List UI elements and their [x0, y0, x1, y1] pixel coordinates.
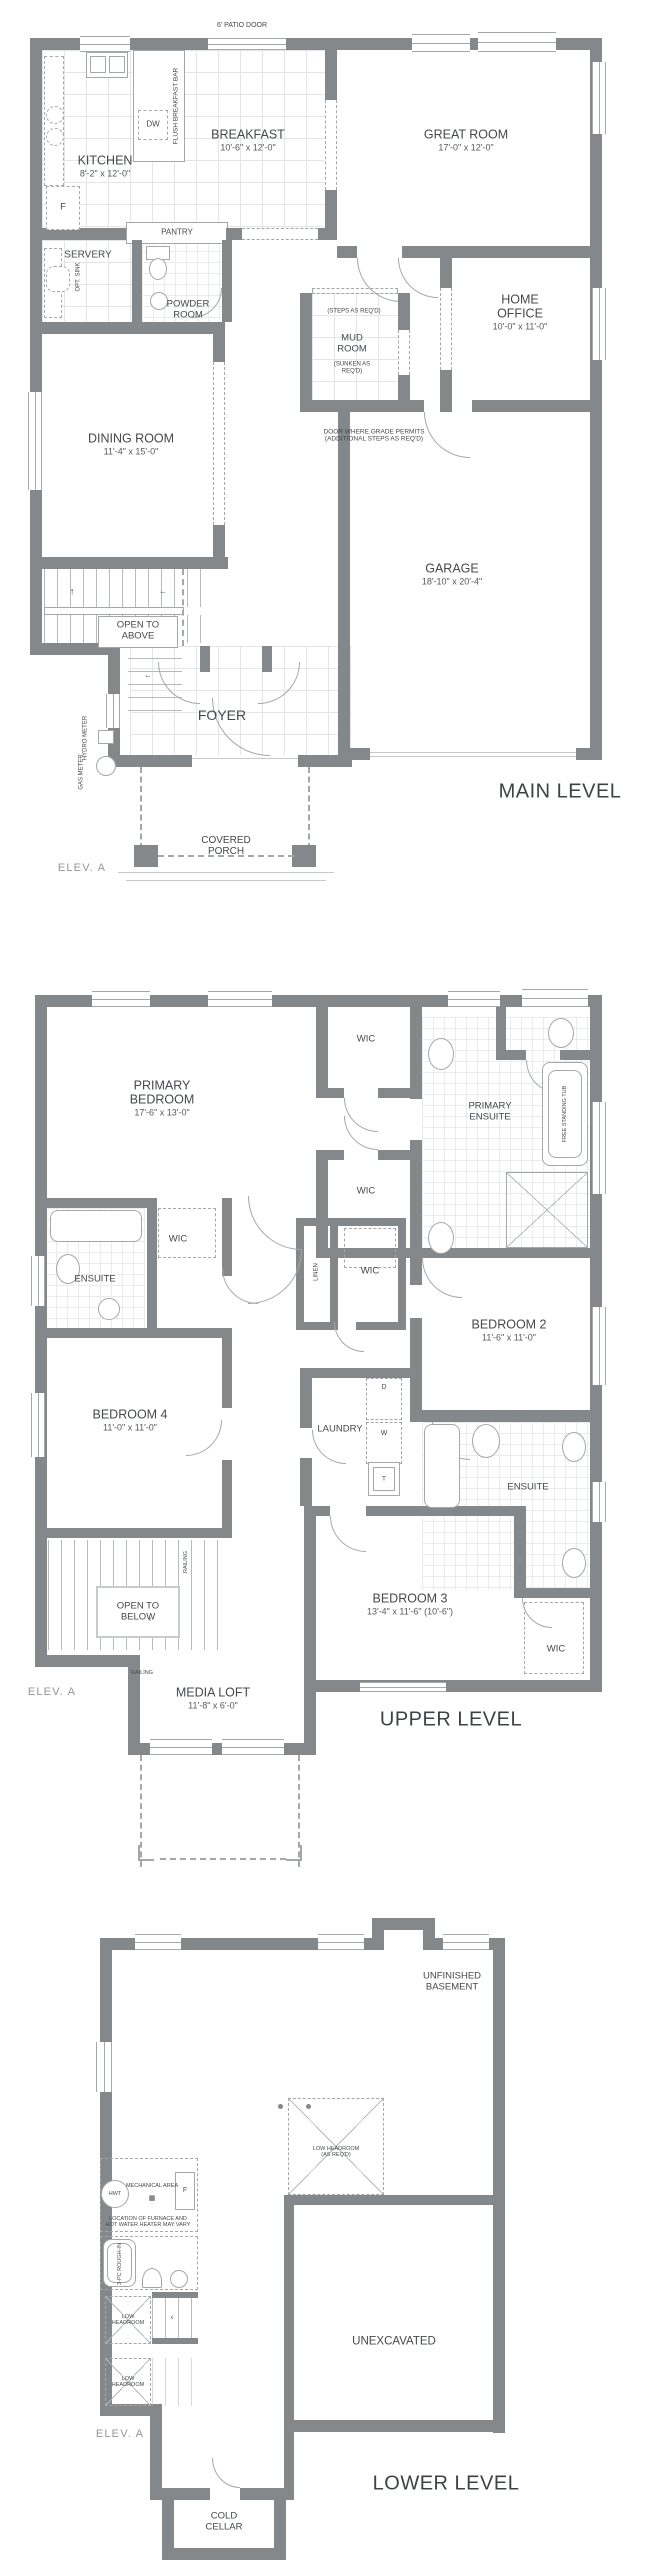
- open-above-label: OPEN TO ABOVE: [109, 620, 167, 641]
- stairs-decor: [152, 2294, 198, 2344]
- name-decor: GREAT ROOM: [424, 127, 508, 141]
- arc-decor: [334, 1322, 364, 1352]
- winv-decor: [592, 288, 606, 360]
- w-decor: [576, 748, 602, 760]
- winv-decor: [31, 1256, 45, 1306]
- w-decor: [300, 293, 312, 412]
- fridge-label: F: [60, 203, 66, 214]
- xbox-decor: [506, 1172, 588, 1248]
- furnace-f-label: F: [183, 2187, 187, 2195]
- bedroom2-label: BEDROOM 211'-6" x 11'-0": [471, 1317, 546, 1342]
- flush-bar-label: FLUSH BREAKFAST BAR: [172, 68, 179, 144]
- name-decor: KITCHEN: [78, 153, 133, 167]
- w-decor: [316, 1007, 328, 1093]
- cornerL-decor: [138, 1845, 154, 1861]
- w-decor: [440, 370, 452, 412]
- fxd-decor: [46, 128, 64, 146]
- w-decor: [226, 228, 242, 240]
- hwt-label: HWT: [109, 2191, 122, 2197]
- w-decor: [590, 38, 602, 760]
- furnace-icon: ▦: [149, 2195, 156, 2203]
- winv-decor: [592, 1482, 606, 1522]
- dim-decor: 8'-2" x 12'-0": [78, 168, 133, 178]
- win-decor: [150, 1739, 212, 1755]
- primary-ensuite-label: PRIMARY ENSUITE: [461, 1101, 519, 1122]
- w-decor: [560, 1050, 602, 1060]
- steps-label: (STEPS AS REQ'D): [322, 309, 386, 316]
- door-grade-label: DOOR WHERE GRADE PERMITS (ADDITIONAL STE…: [318, 429, 430, 444]
- dim-decor: 11'-8" x 6'-0": [176, 1700, 250, 1710]
- low-headroom1-label: LOW HEADROOM: [107, 2314, 149, 2326]
- w-decor: [284, 2195, 504, 2205]
- dash-decor: [312, 288, 398, 294]
- w-decor: [42, 322, 225, 334]
- w-decor: [493, 1938, 505, 2433]
- arc-decor: [248, 1196, 302, 1250]
- w-decor: [304, 1506, 316, 1655]
- arc-decor: [422, 1258, 462, 1298]
- fx-decor: [170, 2270, 188, 2288]
- w-decor: [316, 1680, 602, 1692]
- w-decor: [300, 1458, 312, 1506]
- wic-br-label: WIC: [547, 1645, 565, 1656]
- win-decor: [448, 991, 500, 1007]
- stair-arrow-icon: ‹: [149, 1616, 152, 1625]
- w-decor: [213, 322, 225, 362]
- fx-decor: [428, 1038, 454, 1070]
- name-decor: MEDIA LOFT: [176, 1685, 250, 1699]
- dim-decor: 18'-10" x 20'-4": [422, 576, 482, 586]
- w-decor: [35, 1528, 232, 1538]
- stairs-decor: [152, 2358, 198, 2406]
- w-decor: [325, 50, 337, 100]
- fx-decor: [98, 1298, 120, 1320]
- arc-decor: [330, 1516, 366, 1552]
- dash-decor: [158, 1208, 216, 1258]
- w-decor: [330, 1218, 338, 1330]
- dim-decor: 10'-6" x 12'-0": [211, 142, 285, 152]
- arc-decor: [186, 1420, 222, 1456]
- fx-decor: [109, 56, 125, 73]
- arc-decor: [398, 258, 438, 298]
- w-decor: [222, 1460, 232, 1528]
- winv-decor: [31, 1393, 45, 1457]
- win-decor: [360, 1682, 446, 1692]
- win-decor: [208, 38, 286, 50]
- post-decor: [292, 845, 316, 867]
- dim-decor: 17'-6" x 13'-0": [120, 1107, 205, 1117]
- w-decor: [296, 1218, 406, 1226]
- cold-cellar-label: COLD CELLAR: [198, 2511, 250, 2532]
- w-decor: [316, 1088, 344, 1098]
- dashwv-decor: [325, 100, 337, 190]
- w-decor: [35, 1328, 232, 1338]
- fx-decor: [424, 1424, 460, 1508]
- breakfast-label: BREAKFAST10'-6" x 12'-0": [211, 127, 285, 152]
- upper-level-title: UPPER LEVEL: [380, 1709, 522, 1732]
- dim-decor: 10'-0" x 11'-0": [490, 321, 550, 331]
- dim-decor: 11'-6" x 11'-0": [471, 1332, 546, 1342]
- laundry-label: LAUNDRY: [317, 1425, 362, 1436]
- w-decor: [284, 2195, 294, 2432]
- w-decor: [108, 755, 192, 767]
- fx-decor: [562, 1432, 586, 1462]
- stair-arrow-icon: ‹: [171, 2314, 174, 2323]
- w-decor: [440, 258, 452, 288]
- w-decor: [222, 1338, 232, 1408]
- name-decor: HOME OFFICE: [490, 292, 550, 320]
- w-decor: [300, 400, 424, 412]
- w-decor: [410, 1318, 422, 1410]
- stair-arrow-icon: ←: [159, 588, 167, 597]
- fx-decor: [98, 730, 114, 744]
- wic-mid-label: WIC: [361, 1267, 379, 1278]
- win-decor: [478, 32, 556, 52]
- primary-bedroom-label: PRIMARY BEDROOM17'-6" x 13'-0": [120, 1078, 205, 1117]
- w-decor: [337, 246, 357, 258]
- post-decor: [134, 845, 158, 867]
- home-office-label: HOME OFFICE10'-0" x 11'-0": [490, 292, 550, 331]
- w-decor: [410, 1410, 602, 1422]
- w-decor: [300, 1368, 412, 1378]
- fxd-decor: [46, 266, 70, 292]
- dim-decor: 13'-4" x 11'-6" (10'-6"): [367, 1606, 453, 1616]
- fx-decor: [428, 1222, 454, 1254]
- hl-decor: [370, 752, 576, 753]
- dashwv-decor: [440, 288, 452, 370]
- w-decor: [200, 646, 210, 672]
- dining-room-label: DINING ROOM11'-4" x 15'-0": [88, 431, 174, 456]
- upper-elev-label: ELEV. A: [28, 1686, 76, 1698]
- linen-label: LINEN: [314, 1263, 321, 1281]
- w-decor: [514, 1588, 602, 1598]
- w-decor: [222, 240, 232, 322]
- name-decor: BREAKFAST: [211, 127, 285, 141]
- w-decor: [338, 412, 350, 748]
- foyer-label: FOYER: [198, 708, 246, 724]
- furnace-note-label: LOCATION OF FURNACE AND HOT WATER HEATER…: [105, 2216, 191, 2228]
- name-decor: PRIMARY BEDROOM: [120, 1078, 205, 1106]
- low-headroom-reqd-label: LOW HEADROOM (AS REQ'D): [309, 2146, 363, 2158]
- dim-decor: 11'-4" x 15'-0": [88, 446, 174, 456]
- win-decor: [522, 989, 588, 1007]
- lower-level-title: LOWER LEVEL: [373, 2473, 520, 2496]
- winv-decor: [106, 694, 120, 728]
- fxd-decor: [366, 1422, 402, 1464]
- w-decor: [147, 1198, 157, 1338]
- great-room-label: GREAT ROOM17'-0" x 12'-0": [424, 127, 508, 152]
- dim-decor: 17'-0" x 12'-0": [424, 142, 508, 152]
- wic2-label: WIC: [357, 1187, 375, 1198]
- railing-label: RAILING: [183, 1551, 189, 1573]
- win-decor: [222, 1739, 284, 1755]
- washer-label: W: [381, 1430, 388, 1438]
- w-decor: [162, 2548, 286, 2560]
- dv-decor: [140, 767, 142, 849]
- winv-decor: [592, 62, 606, 134]
- hl-decor: [118, 872, 334, 873]
- fx-decor: [548, 1018, 574, 1048]
- mud-room-label: MUD ROOM: [330, 333, 374, 354]
- w-decor: [398, 293, 410, 330]
- w-decor: [150, 2404, 162, 2500]
- media-loft-label: MEDIA LOFT11'-8" x 6'-0": [176, 1685, 250, 1710]
- w-decor: [514, 1516, 526, 1596]
- dv-decor: [182, 569, 184, 646]
- unexcavated-label: UNEXCAVATED: [352, 2336, 436, 2349]
- win-decor: [443, 1934, 489, 1950]
- fx-decor: [472, 1424, 500, 1458]
- railing2-label: RAILING: [131, 1670, 153, 1676]
- w-decor: [398, 1218, 406, 1330]
- powder-room-label: POWDER ROOM: [163, 299, 213, 320]
- lower-elev-label: ELEV. A: [96, 2428, 144, 2440]
- arc-decor: [212, 2458, 240, 2488]
- w-decor: [496, 1050, 526, 1060]
- dim-decor: 11'-0" x 11'-0": [92, 1422, 167, 1432]
- fx-decor: [149, 258, 167, 280]
- dashw-decor: [242, 228, 318, 240]
- mechanical-area-label: MECHANICAL AREA: [126, 2183, 178, 2189]
- ensuite-right-label: ENSUITE: [507, 1483, 548, 1494]
- w-decor: [338, 748, 370, 760]
- covered-porch-label: COVERED PORCH: [193, 835, 259, 857]
- stair-arrow2-icon: ←: [144, 672, 152, 681]
- dash-decor: [524, 1602, 584, 1674]
- post-decor: [278, 2104, 283, 2109]
- win-decor: [135, 1934, 181, 1950]
- hl-decor: [370, 756, 576, 757]
- winv-decor: [592, 1102, 606, 1194]
- arc-decor: [344, 1116, 378, 1150]
- patio-door-label: 6' PATIO DOOR: [217, 22, 267, 30]
- w-decor: [304, 1655, 316, 1755]
- win-decor: [92, 991, 150, 1007]
- win-decor: [412, 34, 470, 52]
- win-decor: [80, 36, 130, 52]
- name-decor: BEDROOM 4: [92, 1407, 167, 1421]
- post-decor: [152, 2292, 198, 2298]
- name-decor: BEDROOM 2: [471, 1317, 546, 1331]
- main-elev-label: ELEV. A: [58, 862, 106, 874]
- dashwv-decor: [398, 330, 410, 375]
- dv-decor: [308, 767, 310, 849]
- hl-decor: [192, 758, 298, 759]
- mud-sub-label: (SUNKEN AS REQ'D): [324, 361, 380, 374]
- winv-decor: [96, 2042, 112, 2092]
- opt-sink-label: OPT. SINK: [76, 262, 83, 291]
- win-decor: [318, 1934, 364, 1950]
- w-decor: [325, 190, 337, 240]
- floor-plan-canvas: 6' PATIO DOOR KITCHEN8'-2" x 12'-0" BREA…: [0, 0, 657, 2560]
- name-decor: DINING ROOM: [88, 431, 174, 445]
- w-decor: [402, 246, 602, 258]
- fx-decor: [96, 756, 116, 776]
- bedroom3-label: BEDROOM 313'-4" x 11'-6" (10'-6"): [367, 1591, 453, 1616]
- post-decor: [152, 2338, 198, 2344]
- w-decor: [316, 1160, 328, 1248]
- w-decor: [35, 1198, 157, 1208]
- free-standing-tub-label: FREE STANDING TUB: [562, 1086, 568, 1143]
- w-decor: [222, 1198, 232, 1276]
- wic-left-label: WIC: [169, 1235, 187, 1246]
- cornerR-decor: [286, 1845, 302, 1861]
- unfinished-basement-label: UNFINISHED BASEMENT: [416, 1971, 488, 1992]
- w-decor: [410, 1007, 422, 1099]
- w-decor: [132, 240, 142, 322]
- fx-decor: [90, 56, 106, 73]
- dw-label: DW: [146, 121, 159, 130]
- fx-decor: [142, 2268, 162, 2288]
- dryer-label: D: [381, 1384, 386, 1392]
- main-level-title: MAIN LEVEL: [499, 781, 622, 804]
- kitchen-label: KITCHEN8'-2" x 12'-0": [78, 153, 133, 178]
- gas-meter-label: GAS METER: [79, 754, 86, 789]
- post-decor: [306, 2104, 311, 2109]
- garage-label: GARAGE18'-10" x 20'-4": [422, 561, 482, 586]
- bedroom4-label: BEDROOM 411'-0" x 11'-0": [92, 1407, 167, 1432]
- w-decor: [410, 1255, 422, 1285]
- rough-in-label: 3-PC ROUGH-IN: [117, 2243, 123, 2285]
- winv-decor: [28, 392, 42, 490]
- arc-decor: [424, 412, 470, 458]
- winv-decor: [592, 1307, 606, 1385]
- dh-decor: [160, 1858, 286, 1860]
- w-decor: [296, 1322, 338, 1330]
- servery-label: SERVERY: [64, 249, 111, 260]
- stair-up-arrow-icon: ↑: [70, 586, 75, 597]
- fx-decor: [50, 1210, 142, 1242]
- w-decor: [378, 1150, 422, 1160]
- fx-decor: [562, 1548, 586, 1578]
- w-decor: [284, 2420, 504, 2432]
- w-decor: [423, 1918, 435, 1950]
- low-headroom2-label: LOW HEADROOM: [107, 2376, 149, 2388]
- w-decor: [472, 400, 602, 412]
- w-decor: [300, 1368, 312, 1428]
- arc-decor: [248, 1250, 302, 1304]
- open-below-label: OPEN TO BELOW: [108, 1601, 168, 1622]
- wic1-label: WIC: [357, 1035, 375, 1046]
- w-decor: [316, 1150, 344, 1160]
- dash-decor: [344, 1228, 396, 1268]
- ensuite-left-label: ENSUITE: [74, 1275, 115, 1286]
- w-decor: [30, 557, 228, 569]
- pantry-label: PANTRY: [161, 229, 193, 238]
- w-decor: [35, 1655, 140, 1667]
- win-decor: [208, 991, 272, 1007]
- name-decor: GARAGE: [422, 561, 482, 575]
- dashwv-decor: [213, 362, 225, 525]
- name-decor: BEDROOM 3: [367, 1591, 453, 1605]
- hl-decor: [126, 880, 326, 881]
- fxd-decor: [46, 106, 64, 124]
- fx-decor: [44, 607, 184, 615]
- tub-label: T: [382, 1475, 386, 1482]
